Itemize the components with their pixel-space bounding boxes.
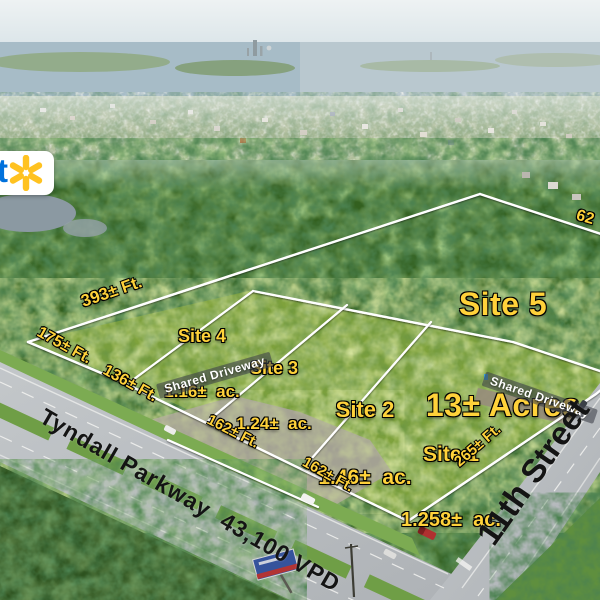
- walmart-wordmark-letter: t: [0, 152, 8, 190]
- walmart-logo-card: t: [0, 151, 54, 195]
- suburb-band: [0, 96, 600, 170]
- bay-water: [0, 42, 600, 104]
- walmart-spark-icon: [8, 155, 44, 191]
- site1-name: Site 1: [388, 444, 514, 466]
- aerial-site-plan-image: t Site 5 13± Acres Site 4 1.16± ac. Site…: [0, 0, 600, 600]
- site5-name: Site 5: [418, 288, 588, 322]
